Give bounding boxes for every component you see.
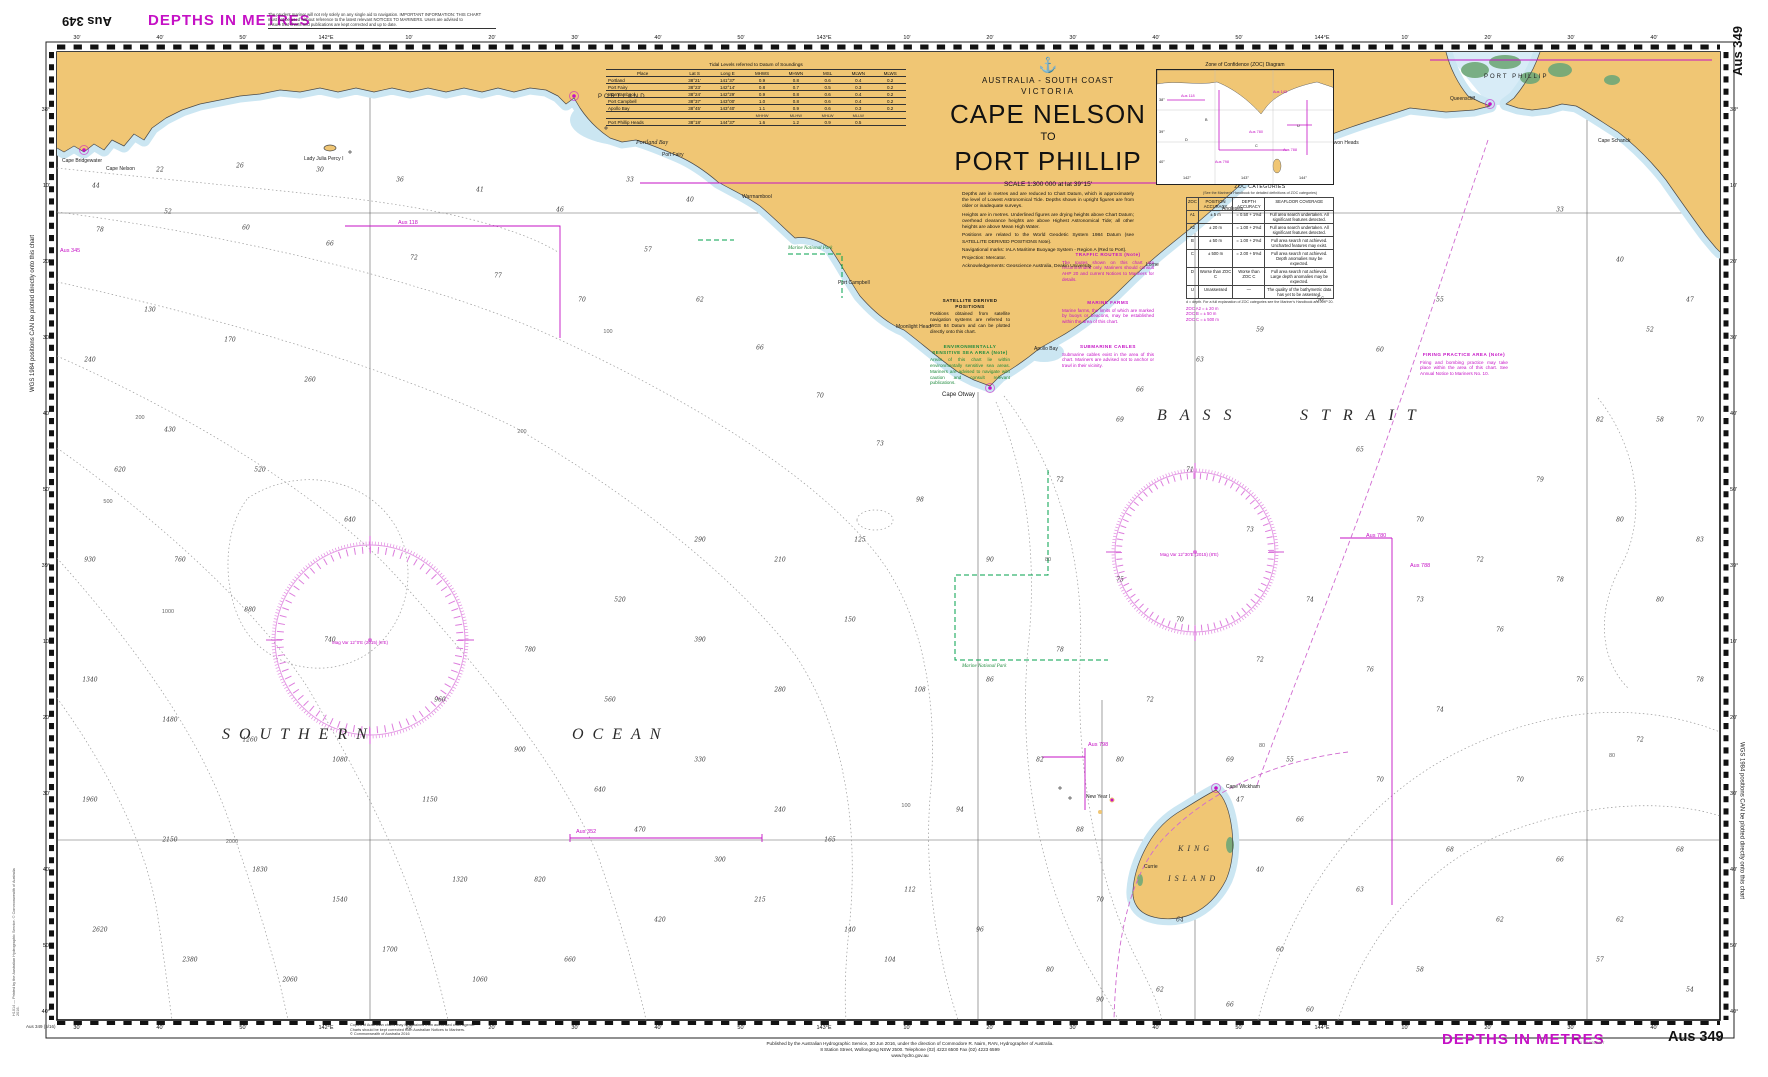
sounding: 65 (1356, 447, 1364, 454)
map-label: Lady Julia Percy I (304, 156, 343, 162)
zoc-cell: ± 20 m (1198, 224, 1232, 237)
sounding: 60 (1376, 347, 1384, 354)
tidal-cell: 143°40' (710, 105, 745, 112)
map-label: Warrnambool (742, 194, 772, 200)
caution-note: ENVIRONMENTALLY SENSITIVE SEA AREA (Note… (930, 344, 1010, 386)
map-label: Mag Var 12°0'E (2015) (8'E) (332, 640, 388, 645)
zoc-row: DWorse than ZOC CWorse than ZOC CFull ar… (1187, 268, 1334, 286)
tidal-cell: 1.6 (745, 119, 779, 126)
sounding: 1150 (422, 797, 437, 804)
latitude-label-right: 39° (1730, 563, 1738, 569)
sounding: 1480 (162, 717, 177, 724)
tidal-cell: 38°24' (679, 91, 710, 98)
sounding: 62 (696, 297, 704, 304)
map-label: Cape Wickham (1226, 784, 1260, 790)
sounding: 820 (534, 877, 545, 884)
zoc-inset-label: Aus 788 (1283, 148, 1297, 152)
zoc-cell: = 1.00 + 2%d (1233, 237, 1265, 250)
tidal-cell: 141°37' (710, 77, 745, 84)
zoc-row: A1± 5 m= 0.50 + 1%dFull area search unde… (1187, 211, 1334, 224)
zoc-cell: Full area search not achieved. Large dep… (1265, 268, 1334, 286)
longitude-label-top: 143°E (816, 35, 831, 41)
tidal-cell: 0.6 (813, 98, 842, 105)
sounding: 130 (144, 307, 155, 314)
zoc-inset-label: Aus 798 (1215, 160, 1229, 164)
contour-label: 100 (603, 329, 612, 335)
zoc-cell: A2 (1187, 224, 1199, 237)
title-note-paragraph: Acknowledgements: Geoscience Australia, … (962, 264, 1134, 270)
tidal-header-cell: MHWN (779, 70, 813, 77)
title-region: AUSTRALIA - SOUTH COAST (948, 76, 1148, 85)
longitude-label-top: 40' (1650, 35, 1657, 41)
tidal-levels-table: Tidal Levels referred to Datum of Soundi… (606, 63, 906, 126)
tidal-subheader-cell (874, 112, 906, 119)
map-label: New Year I (1086, 794, 1110, 800)
sounding: 112 (904, 887, 915, 894)
sounding: 70 (1516, 777, 1524, 784)
tidal-subheader-cell: MHHW (745, 112, 779, 119)
sounding: 64 (1176, 917, 1184, 924)
longitude-label-top: 50' (239, 35, 246, 41)
sounding: 30 (316, 167, 324, 174)
sounding: 79 (1536, 477, 1544, 484)
wgs-note-left: WGS 1984 positions CAN be plotted direct… (30, 112, 37, 392)
sounding: 69 (1116, 417, 1124, 424)
sounding: 1080 (332, 757, 347, 764)
sounding: 76 (1366, 667, 1374, 674)
sounding: 2060 (282, 977, 297, 984)
longitude-label-bottom: 144°E (1314, 1025, 1329, 1031)
zoc-inset-label: B (1205, 118, 1208, 122)
sounding: 72 (410, 255, 418, 262)
sounding: 78 (1556, 577, 1564, 584)
map-label: OCEAN (572, 726, 669, 744)
map-label: Aus 118 (398, 220, 418, 226)
tidal-cell: 0.2 (874, 77, 906, 84)
latitude-label-right: 20' (1730, 259, 1737, 265)
tidal-cell: 143°00' (710, 98, 745, 105)
important-information-note: The prudent mariner will not rely solely… (268, 13, 496, 29)
latitude-label-right: 40' (1730, 867, 1737, 873)
longitude-label-top: 20' (488, 35, 495, 41)
tidal-cell: 0.5 (813, 84, 842, 91)
sounding: 41 (476, 187, 484, 194)
sounding: 960 (434, 697, 445, 704)
sounding: 70 (578, 297, 586, 304)
caution-note: SUBMARINE CABLESSubmarine cables exist i… (1062, 344, 1154, 369)
tidal-row: Apollo Bay38°45'143°40'1.10.90.60.30.2 (606, 105, 906, 112)
longitude-label-bottom: 20' (986, 1025, 993, 1031)
sounding: 1830 (252, 867, 267, 874)
zoc-cell: ± 5 m (1198, 211, 1232, 224)
title-block: ⚓ AUSTRALIA - SOUTH COAST VICTORIA CAPE … (948, 58, 1148, 273)
zoc-cell: C (1187, 250, 1199, 268)
sounding: 26 (236, 163, 244, 170)
sounding: 760 (174, 557, 185, 564)
sounding: 54 (1686, 987, 1694, 994)
caution-note-body: Submarine cables exist in the area of th… (1062, 352, 1154, 369)
longitude-label-top: 144°E (1314, 35, 1329, 41)
longitude-label-top: 30' (1069, 35, 1076, 41)
sounding: 1320 (452, 877, 467, 884)
map-label: Aus 352 (576, 829, 596, 835)
longitude-label-bottom: 30' (1069, 1025, 1076, 1031)
sounding: 62 (1156, 987, 1164, 994)
contour-label: 2000 (226, 839, 238, 845)
sounding: 78 (1056, 647, 1064, 654)
zoc-cell: B (1187, 237, 1199, 250)
zoc-row: B± 50 m= 1.00 + 2%dFull area search not … (1187, 237, 1334, 250)
zoc-cell: = 1.00 + 2%d (1233, 224, 1265, 237)
latitude-label-right: 50' (1730, 943, 1737, 949)
sounding: 68 (1446, 847, 1454, 854)
longitude-label-top: 20' (1484, 35, 1491, 41)
sounding: 900 (514, 747, 525, 754)
zoc-inset-label: C (1255, 144, 1258, 148)
tidal-cell: Warrnambool (606, 91, 679, 98)
caution-note-body: Firing and bombing practice may take pla… (1420, 360, 1508, 377)
sounding: 780 (524, 647, 535, 654)
zoc-cell: Full area search not achieved. Uncharted… (1265, 237, 1334, 250)
latitude-label-right: 10' (1730, 183, 1737, 189)
zoc-header-cell: SEAFLOOR COVERAGE (1265, 198, 1334, 211)
contour-label: 80 (1609, 753, 1615, 759)
sounding: 33 (626, 177, 634, 184)
longitude-label-top: 30' (571, 35, 578, 41)
sounding: 60 (242, 225, 250, 232)
map-label: Moonlight Head (896, 324, 931, 330)
sounding: 57 (644, 247, 652, 254)
title-note-paragraph: Positions are related to the World Geode… (962, 233, 1134, 245)
zoc-inset-label: Aus 118 (1181, 94, 1195, 98)
longitude-label-bottom: 40' (654, 1025, 661, 1031)
chart-number-top-left: Aus 349 (62, 14, 112, 29)
sounding: 73 (1246, 527, 1254, 534)
tidal-cell: Port Fairy (606, 84, 679, 91)
zoc-cell: Full area search undertaken. All signifi… (1265, 224, 1334, 237)
sounding: 66 (1556, 857, 1564, 864)
zoc-inset-canvas (1157, 70, 1334, 185)
zoc-table-subtitle: (See the Mariner's Handbook for detailed… (1186, 191, 1334, 195)
sounding: 94 (956, 807, 964, 814)
latitude-label-left: 39° (42, 563, 50, 569)
sounding: 66 (756, 345, 764, 352)
longitude-label-bottom: 30' (73, 1025, 80, 1031)
contour-label: 500 (103, 499, 112, 505)
sounding: 620 (114, 467, 125, 474)
tidal-header-cell: MLWN (842, 70, 874, 77)
contour-label: 80 (1259, 743, 1265, 749)
sounding: 88 (1076, 827, 1084, 834)
sounding: 930 (84, 557, 95, 564)
tidal-cell: 0.2 (874, 91, 906, 98)
tidal-cell: 38°18' (679, 119, 710, 126)
contour-label: 80 (1045, 557, 1051, 563)
latitude-label-left: 20' (43, 715, 50, 721)
latitude-label-right: 30' (1730, 791, 1737, 797)
latitude-label-left: 50' (43, 487, 50, 493)
longitude-label-top: 40' (1152, 35, 1159, 41)
caution-note-title: FIRING PRACTICE AREA (Note) (1420, 352, 1508, 358)
tidal-cell: Port Campbell (606, 98, 679, 105)
caution-note-title: ENVIRONMENTALLY SENSITIVE SEA AREA (Note… (930, 344, 1010, 355)
sounding: 96 (976, 927, 984, 934)
zoc-cell: Full area search undertaken. All signifi… (1265, 211, 1334, 224)
map-label: Cape Nelson (106, 166, 135, 172)
tidal-cell: 38°37' (679, 98, 710, 105)
sounding: 76 (1576, 677, 1584, 684)
sounding: 520 (254, 467, 265, 474)
tidal-cell: 0.6 (813, 91, 842, 98)
sounding: 640 (594, 787, 605, 794)
zoc-diagram-inset: Zone of Confidence (ZOC) Diagram 142°143… (1156, 62, 1334, 185)
sounding: 1260 (242, 737, 257, 744)
longitude-label-bottom: 142°E (318, 1025, 333, 1031)
zoc-inset-label: Aus 143 (1273, 90, 1287, 94)
longitude-label-top: 40' (654, 35, 661, 41)
sounding: 74 (1306, 597, 1314, 604)
sounding: 82 (1596, 417, 1604, 424)
title-note-paragraph: Navigational marks: IALA Maritime Buoyag… (962, 248, 1134, 254)
tidal-header-cell: MLWS (874, 70, 906, 77)
map-label: Cape Otway (942, 392, 975, 398)
zoc-cell: = 0.50 + 1%d (1233, 211, 1265, 224)
sounding: 90 (1096, 997, 1104, 1004)
latitude-label-left: 30' (43, 791, 50, 797)
zoc-cell: D (1187, 268, 1199, 286)
sounding: 430 (164, 427, 175, 434)
hydrographic-service-emblem-icon: ⚓ (948, 58, 1148, 74)
sounding: 86 (986, 677, 994, 684)
tidal-header-cell: Long E (710, 70, 745, 77)
tidal-cell: 0.9 (745, 91, 779, 98)
latitude-label-left: 10' (43, 639, 50, 645)
sounding: 78 (96, 227, 104, 234)
latitude-label-left: 40' (43, 867, 50, 873)
sounding: 82 (1036, 757, 1044, 764)
zoc-inset-title: Zone of Confidence (ZOC) Diagram (1156, 62, 1334, 68)
tidal-cell: 1.0 (745, 98, 779, 105)
sounding: 83 (1696, 537, 1704, 544)
sounding: 72 (1146, 697, 1154, 704)
map-label: ISLAND (1168, 874, 1219, 883)
sounding: 330 (694, 757, 705, 764)
sounding: 58 (1416, 967, 1424, 974)
edition-note: Aus 349 (6/16) (26, 1024, 56, 1029)
labels-layer: BASSSTRAITSOUTHERNOCEANCape BridgewaterC… (0, 0, 1768, 1077)
title-note-paragraph: Heights are in metres. Underlined figure… (962, 213, 1134, 232)
sounding: 40 (1616, 257, 1624, 264)
tidal-cell: Port Phillip Heads (606, 119, 679, 126)
longitude-label-bottom: 10' (903, 1025, 910, 1031)
zoc-inset-label: U (1297, 124, 1300, 128)
caution-note: SATELLITE DERIVED POSITIONSPositions obt… (930, 298, 1010, 334)
sounding: 74 (1436, 707, 1444, 714)
tidal-row: Port Fairy38°23'142°14'0.80.70.50.30.2 (606, 84, 906, 91)
sounding: 1340 (82, 677, 97, 684)
zoc-inset-label: Aus 780 (1249, 130, 1263, 134)
tidal-cell: Portland (606, 77, 679, 84)
tidal-subheader-cell: MHLW (813, 112, 842, 119)
print-note-left: H1014 — Printed by the Australian Hydrog… (12, 866, 20, 1016)
title-note-paragraph: Depths are in metres and are reduced to … (962, 192, 1134, 211)
zoc-cell: The quality of the bathymetric data has … (1265, 286, 1334, 299)
tidal-cell: Apollo Bay (606, 105, 679, 112)
tidal-cell: 38°21' (679, 77, 710, 84)
wgs-note-right: WGS 1984 positions CAN be plotted direct… (1738, 742, 1745, 1022)
tidal-cell: 0.4 (842, 77, 874, 84)
zoc-row: C± 500 m= 2.00 + 5%dFull area search not… (1187, 250, 1334, 268)
sounding: 560 (604, 697, 615, 704)
zoc-header-row: ZOCPOSITION ACCURACYDEPTH ACCURACYSEAFLO… (1187, 198, 1334, 211)
title-notes: Depths are in metres and are reduced to … (962, 192, 1134, 271)
sounding: 165 (824, 837, 835, 844)
map-label: Marine National Park (962, 664, 1006, 669)
title-line1: CAPE NELSON (948, 99, 1148, 130)
zoc-cell: U (1187, 286, 1199, 299)
latitude-label-right: 20' (1730, 715, 1737, 721)
map-label: Port Fairy (662, 152, 684, 158)
sounding: 69 (1226, 757, 1234, 764)
caution-note-title: SUBMARINE CABLES (1062, 344, 1154, 350)
chart-number-top-right: Aus 349 (1730, 26, 1745, 76)
zoc-cell: Unassessed (1198, 286, 1232, 299)
zoc-inset-label: 38° (1159, 98, 1165, 102)
zoc-header-cell: DEPTH ACCURACY (1233, 198, 1265, 211)
caution-note-title: SATELLITE DERIVED POSITIONS (930, 298, 1010, 309)
contour-label: 1000 (162, 609, 174, 615)
longitude-label-top: 142°E (318, 35, 333, 41)
longitude-label-bottom: 50' (239, 1025, 246, 1031)
tidal-subheader-cell: MLLW (842, 112, 874, 119)
map-label: Portland Bay (636, 140, 668, 146)
zoc-magenta-line: ZOC C = ± 500 m (1186, 317, 1334, 322)
caution-note: FIRING PRACTICE AREA (Note)Firing and bo… (1420, 352, 1508, 377)
zoc-cell: ± 50 m (1198, 237, 1232, 250)
tidal-subheader-row: MHHWMLHWMHLWMLLW (606, 112, 906, 119)
map-label: KING (1178, 844, 1213, 853)
latitude-label-left: 30' (43, 335, 50, 341)
sounding: 36 (396, 177, 404, 184)
tidal-header-cell: MHWS (745, 70, 779, 77)
map-label: Aus 780 (1366, 533, 1386, 539)
caution-note-body: Positions obtained from satellite naviga… (930, 311, 1010, 334)
zoc-cell: = 2.00 + 5%d (1233, 250, 1265, 268)
sounding: 420 (654, 917, 665, 924)
sounding: 470 (634, 827, 645, 834)
sounding: 290 (694, 537, 705, 544)
sounding: 80 (1616, 517, 1624, 524)
sounding: 33 (1556, 207, 1564, 214)
sounding: 44 (92, 183, 100, 190)
tidal-cell: 0.2 (874, 98, 906, 105)
sounding: 46 (556, 207, 564, 214)
sounding: 1700 (382, 947, 397, 954)
zoc-categories-block: ZOC CATEGORIES (See the Mariner's Handbo… (1186, 184, 1334, 322)
sounding: 140 (844, 927, 855, 934)
sounding: 60 (1276, 947, 1284, 954)
tidal-cell: 0.2 (874, 84, 906, 91)
zoc-inset-label: 144° (1299, 176, 1307, 180)
sounding: 210 (774, 557, 785, 564)
longitude-label-top: 10' (1401, 35, 1408, 41)
sounding: 98 (916, 497, 924, 504)
zoc-inset-map: 142°143°144°38°39°40°Aus 118Aus 143Aus 7… (1156, 69, 1334, 185)
map-label: Currie (1144, 864, 1158, 870)
sounding: 77 (494, 273, 502, 280)
sounding: 60 (1306, 1007, 1314, 1014)
zoc-cell: ± 500 m (1198, 250, 1232, 268)
sounding: 104 (884, 957, 895, 964)
agent-note-line: © Commonwealth of Australia 2016 (350, 1032, 525, 1037)
tidal-cell: 0.6 (813, 77, 842, 84)
sounding: 40 (686, 197, 694, 204)
sounding: 520 (614, 597, 625, 604)
map-label: Cape Schanck (1598, 138, 1631, 144)
sounding: 47 (1686, 297, 1694, 304)
sounding: 70 (1416, 517, 1424, 524)
title-to: TO (948, 131, 1148, 143)
map-label: Cape Bridgewater (62, 158, 102, 164)
sounding: 47 (1236, 797, 1244, 804)
nautical-chart: BASSSTRAITSOUTHERNOCEANCape BridgewaterC… (0, 0, 1768, 1077)
sounding: 1540 (332, 897, 347, 904)
sounding: 72 (1636, 737, 1644, 744)
sounding: 73 (876, 441, 884, 448)
tidal-cell: 1.2 (779, 119, 813, 126)
tidal-cell: 142°29' (710, 91, 745, 98)
sounding: 2380 (182, 957, 197, 964)
zoc-cell: — (1233, 286, 1265, 299)
latitude-label-right: 38° (1730, 107, 1738, 113)
sounding: 52 (1646, 327, 1654, 334)
sounding: 78 (1696, 677, 1704, 684)
zoc-row: A2± 20 m= 1.00 + 2%dFull area search und… (1187, 224, 1334, 237)
longitude-label-bottom: 10' (1401, 1025, 1408, 1031)
zoc-inset-label: 143° (1241, 176, 1249, 180)
print-code: 1 54 0022497 (1580, 1040, 1604, 1045)
sounding: 240 (774, 807, 785, 814)
tidal-cell: 38°45' (679, 105, 710, 112)
title-scale: SCALE 1:300 000 at lat 39°15' (948, 181, 1148, 188)
sounding: 73 (1416, 597, 1424, 604)
zoc-header-cell: ZOC (1187, 198, 1199, 211)
tidal-header-cell: Place (606, 70, 679, 77)
sounding: 66 (1226, 1002, 1234, 1009)
longitude-label-top: 40' (156, 35, 163, 41)
tidal-subheader-cell (679, 112, 710, 119)
sounding: 63 (1196, 357, 1204, 364)
latitude-label-right: 30' (1730, 335, 1737, 341)
sounding: 1060 (472, 977, 487, 984)
latitude-label-left: 40' (43, 411, 50, 417)
latitude-label-left: 10' (43, 183, 50, 189)
zoc-inset-label: 39° (1159, 130, 1165, 134)
sounding: 70 (1376, 777, 1384, 784)
title-state: VICTORIA (948, 87, 1148, 96)
sounding: 70 (1176, 617, 1184, 624)
zoc-row: UUnassessed—The quality of the bathymetr… (1187, 286, 1334, 299)
longitude-label-top: 50' (1235, 35, 1242, 41)
map-label: Aus 345 (60, 248, 80, 254)
tidal-cell: 0.9 (813, 119, 842, 126)
longitude-label-top: 20' (986, 35, 993, 41)
sounding: 80 (1046, 967, 1054, 974)
map-label: PORT PHILLIP (1484, 74, 1548, 80)
sounding: 125 (854, 537, 865, 544)
sounding: 52 (164, 209, 172, 216)
sounding: 40 (1256, 867, 1264, 874)
